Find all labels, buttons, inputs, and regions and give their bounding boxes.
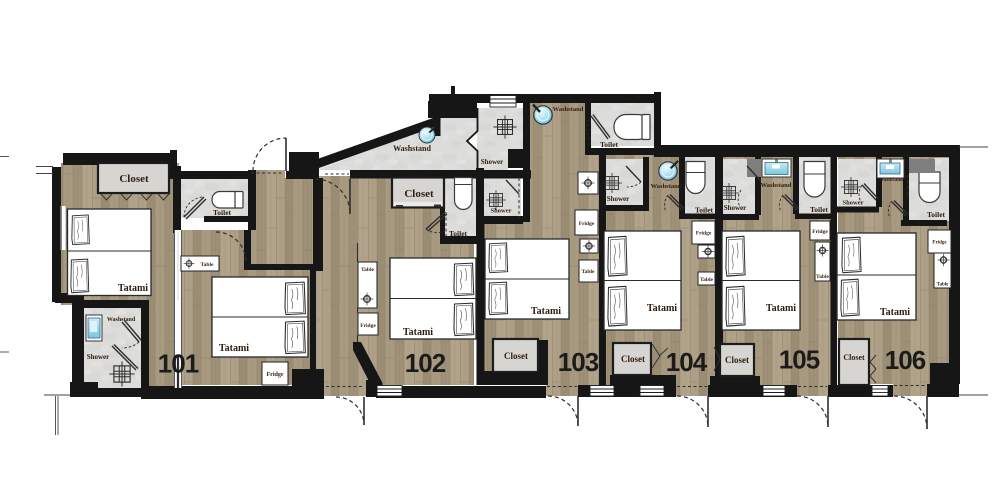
svg-text:101: 101 xyxy=(158,349,199,379)
svg-text:Tatami: Tatami xyxy=(766,303,796,314)
svg-text:Toilet: Toilet xyxy=(927,210,946,219)
svg-text:Tatami: Tatami xyxy=(403,327,433,338)
svg-text:Toilet: Toilet xyxy=(600,140,619,149)
svg-text:Shower: Shower xyxy=(843,200,864,207)
svg-text:Toilet: Toilet xyxy=(695,206,714,215)
svg-text:104: 104 xyxy=(666,347,708,377)
svg-text:Closet: Closet xyxy=(404,188,434,200)
svg-text:Fridge: Fridge xyxy=(812,229,828,235)
svg-text:Fridge: Fridge xyxy=(360,323,376,329)
svg-text:Shower: Shower xyxy=(481,158,504,166)
svg-text:Closet: Closet xyxy=(621,354,645,364)
svg-text:Fridge: Fridge xyxy=(579,221,595,227)
svg-text:Tatami: Tatami xyxy=(647,303,677,314)
svg-text:Toilet: Toilet xyxy=(810,205,829,214)
svg-text:Table: Table xyxy=(816,274,830,280)
svg-text:Tatami: Tatami xyxy=(118,283,148,294)
svg-text:Washstand: Washstand xyxy=(553,106,584,113)
svg-text:Shower: Shower xyxy=(87,353,110,361)
svg-text:Closet: Closet xyxy=(119,173,149,185)
svg-text:Tatami: Tatami xyxy=(880,307,910,318)
svg-text:102: 102 xyxy=(405,348,446,378)
svg-text:Toilet: Toilet xyxy=(213,208,232,217)
svg-text:Tatami: Tatami xyxy=(219,343,249,354)
svg-text:Washstand: Washstand xyxy=(761,182,792,189)
svg-text:Shower: Shower xyxy=(724,204,747,212)
svg-text:Washstand: Washstand xyxy=(879,178,903,183)
svg-text:Closet: Closet xyxy=(725,355,749,365)
svg-text:Fridge: Fridge xyxy=(932,241,947,246)
svg-text:Washstand: Washstand xyxy=(107,317,136,323)
svg-text:105: 105 xyxy=(779,345,820,375)
svg-text:106: 106 xyxy=(885,345,926,375)
svg-text:Fridge: Fridge xyxy=(267,372,284,378)
svg-text:Closet: Closet xyxy=(843,353,865,362)
svg-text:103: 103 xyxy=(558,347,599,377)
svg-text:Table: Table xyxy=(361,267,375,273)
svg-text:Washstand: Washstand xyxy=(393,144,431,153)
svg-text:Closet: Closet xyxy=(504,351,528,361)
svg-text:Shower: Shower xyxy=(607,195,630,203)
svg-text:Fridge: Fridge xyxy=(696,231,712,237)
svg-text:Table: Table xyxy=(937,283,950,288)
svg-text:Table: Table xyxy=(582,269,596,275)
svg-text:Toilet: Toilet xyxy=(449,229,468,238)
svg-text:Washstand: Washstand xyxy=(651,183,682,190)
svg-text:Tatami: Tatami xyxy=(531,306,561,317)
svg-text:Table: Table xyxy=(700,277,714,283)
svg-text:Shower: Shower xyxy=(491,208,512,215)
svg-text:Table: Table xyxy=(201,262,215,268)
